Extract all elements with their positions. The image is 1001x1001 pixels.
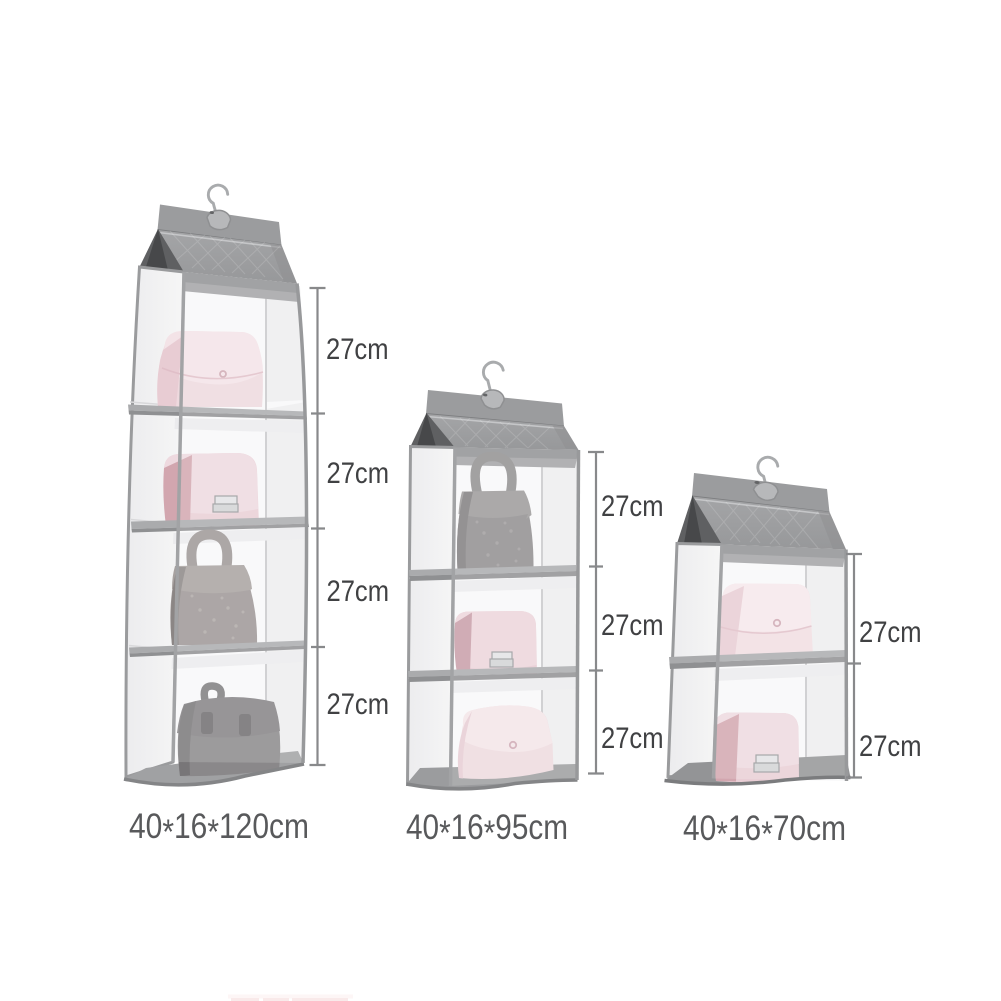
svg-text:40*16*70cm: 40*16*70cm (683, 809, 846, 854)
svg-text:27cm: 27cm (601, 722, 664, 755)
svg-text:27cm: 27cm (601, 609, 664, 642)
svg-text:27cm: 27cm (327, 457, 390, 490)
svg-text:27cm: 27cm (601, 490, 664, 523)
svg-text:40*16*120cm: 40*16*120cm (129, 807, 309, 852)
svg-text:27cm: 27cm (859, 616, 922, 649)
svg-text:40*16*95cm: 40*16*95cm (406, 808, 568, 853)
svg-text:27cm: 27cm (327, 688, 390, 721)
svg-text:27cm: 27cm (859, 730, 922, 763)
svg-text:27cm: 27cm (326, 333, 389, 366)
svg-text:27cm: 27cm (327, 575, 390, 608)
